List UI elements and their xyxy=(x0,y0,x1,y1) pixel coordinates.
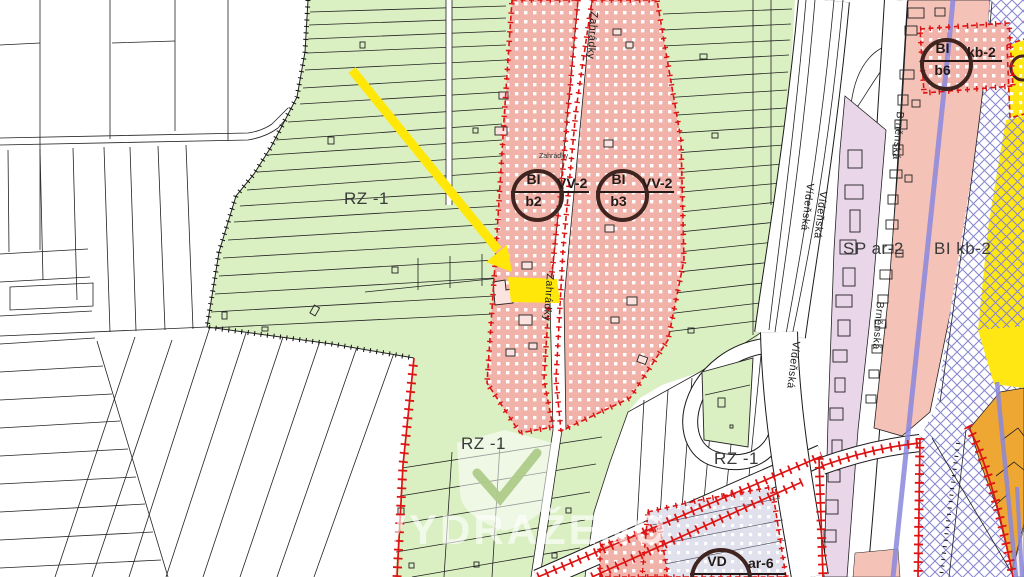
zone-label-zahradky: Zahrádky xyxy=(539,153,568,160)
bi-b2-code-top: BI xyxy=(512,171,555,187)
zone-label-bi-kb2: BI kb-2 xyxy=(934,239,991,259)
vd-code: VD xyxy=(691,553,743,569)
zone-label-rz1-b: RZ -1 xyxy=(461,434,506,454)
bi-b6-code-bottom: b6 xyxy=(921,62,964,78)
green-triangle-rz1 xyxy=(702,358,753,447)
bi-b6-side-label: kb-2 xyxy=(967,44,996,60)
zone-label-rz1-c: RZ -1 xyxy=(714,449,759,469)
bi-b3-side-label: VV-2 xyxy=(642,175,672,191)
zone-label-sp-ar2: SP ar-2 xyxy=(843,239,904,259)
bi-b2-code-bottom: b2 xyxy=(512,193,555,209)
watermark-text: VYDRAŽENO xyxy=(378,506,669,554)
bi-b3-code-top: BI xyxy=(597,171,640,187)
vd-side-label: ar-6 xyxy=(748,555,774,571)
zoning-map: RZ -1 RZ -1 RZ -1 SP ar-2 BI kb-2 Zahrád… xyxy=(0,0,1024,577)
bi-b2-side-label: VV-2 xyxy=(557,175,587,191)
map-canvas xyxy=(0,0,1024,577)
bi-b6-code-top: BI xyxy=(921,40,964,56)
zone-label-rz1-a: RZ -1 xyxy=(344,189,389,209)
bi-b3-code-bottom: b3 xyxy=(597,193,640,209)
